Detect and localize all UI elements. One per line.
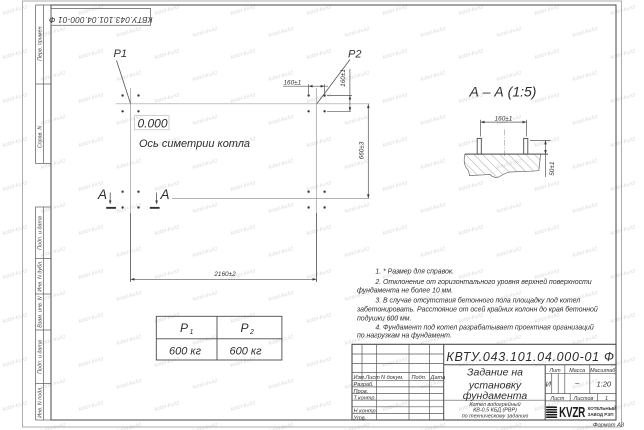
svg-text:Р1: Р1 bbox=[114, 48, 127, 60]
svg-text:3. В случае отсутствия бетонно: 3. В случае отсутствия бетонного пола пл… bbox=[375, 296, 580, 304]
svg-text:Взам. инв. N: Взам. инв. N bbox=[37, 296, 43, 328]
svg-text:160±1: 160±1 bbox=[495, 116, 513, 123]
svg-text:Изм.Лист: Изм.Лист bbox=[354, 375, 381, 381]
svg-text:Подп. и дата: Подп. и дата bbox=[37, 340, 43, 374]
svg-text:2160±2: 2160±2 bbox=[213, 271, 236, 278]
svg-text:Подп. и дата: Подп. и дата bbox=[37, 216, 43, 250]
svg-text:Масса: Масса bbox=[569, 368, 585, 374]
svg-text:2: 2 bbox=[249, 329, 254, 336]
svg-text:Формат А3: Формат А3 bbox=[593, 422, 625, 428]
svg-text:Подп.: Подп. bbox=[412, 375, 427, 381]
svg-text:КОТЕЛЬНЫЙ: КОТЕЛЬНЫЙ bbox=[588, 406, 617, 411]
svg-text:по техническому заданию: по техническому заданию bbox=[462, 413, 529, 419]
svg-text:–: – bbox=[574, 379, 580, 388]
svg-text:Р: Р bbox=[241, 321, 249, 335]
svg-text:подушки 600 мм.: подушки 600 мм. bbox=[357, 315, 412, 323]
svg-text:N докум.: N докум. bbox=[381, 375, 404, 381]
svg-text:1:20: 1:20 bbox=[596, 380, 611, 389]
svg-text:КВТУ.043.101.04.000-01 Ф: КВТУ.043.101.04.000-01 Ф bbox=[446, 350, 614, 364]
svg-text:А – А (1:5): А – А (1:5) bbox=[469, 84, 537, 100]
svg-text:1: 1 bbox=[190, 329, 194, 336]
svg-text:KVZR: KVZR bbox=[559, 404, 585, 420]
svg-text:0.000: 0.000 bbox=[138, 117, 168, 131]
svg-text:2. Отклонение от горизонтально: 2. Отклонение от горизонтального уровня … bbox=[374, 278, 591, 286]
svg-text:Р2: Р2 bbox=[348, 49, 361, 61]
svg-text:Пров.: Пров. bbox=[354, 389, 369, 395]
svg-text:1. * Размер для справок.: 1. * Размер для справок. bbox=[375, 267, 454, 275]
svg-text:А: А bbox=[97, 187, 107, 202]
svg-text:1: 1 bbox=[605, 396, 608, 402]
svg-text:ЗАВОД РЭП: ЗАВОД РЭП bbox=[588, 412, 614, 417]
svg-text:Ось симетрии котла: Ось симетрии котла bbox=[139, 138, 250, 150]
svg-text:Инв. N дубл.: Инв. N дубл. bbox=[37, 260, 43, 291]
svg-text:Разраб.: Разраб. bbox=[354, 382, 374, 388]
svg-text:Утв.: Утв. bbox=[353, 415, 367, 421]
svg-text:по нагрузкам на фундамент.: по нагрузкам на фундамент. bbox=[357, 332, 452, 340]
svg-text:160±1: 160±1 bbox=[284, 80, 302, 87]
svg-text:600 кг: 600 кг bbox=[169, 346, 202, 358]
svg-text:Инв. N подл.: Инв. N подл. bbox=[37, 386, 43, 418]
svg-text:Масштаб: Масштаб bbox=[590, 368, 616, 374]
svg-text:600 кг: 600 кг bbox=[229, 346, 262, 358]
svg-text:4. Фундамент под котел разраба: 4. Фундамент под котел разрабатывает про… bbox=[375, 323, 593, 331]
svg-text:Лит: Лит bbox=[548, 368, 561, 374]
svg-text:160±1: 160±1 bbox=[340, 69, 347, 87]
svg-text:660±3: 660±3 bbox=[358, 141, 365, 159]
svg-text:Т.контр.: Т.контр. bbox=[354, 396, 377, 402]
svg-text:50±1: 50±1 bbox=[549, 161, 556, 176]
svg-text:И: И bbox=[546, 380, 552, 389]
svg-text:А: А bbox=[160, 187, 170, 202]
svg-text:Задание на: Задание на bbox=[467, 367, 523, 379]
svg-text:Перв. примен.: Перв. примен. bbox=[37, 25, 43, 61]
svg-text:Справ. N: Справ. N bbox=[37, 126, 43, 149]
svg-text:забетонировать. Расстояние от: забетонировать. Расстояние от осей крайн… bbox=[356, 306, 598, 314]
svg-text:Дата: Дата bbox=[430, 375, 446, 381]
svg-text:Листов: Листов bbox=[573, 396, 594, 402]
svg-text:КВТУ.043.101.04.000-01 Ф: КВТУ.043.101.04.000-01 Ф bbox=[48, 15, 152, 24]
svg-text:Н.контр.: Н.контр. bbox=[354, 409, 378, 415]
svg-text:Р: Р bbox=[180, 321, 188, 335]
svg-text:фундамента не более 10 мм.: фундамента не более 10 мм. bbox=[357, 287, 453, 295]
svg-text:Лист: Лист bbox=[550, 396, 565, 402]
